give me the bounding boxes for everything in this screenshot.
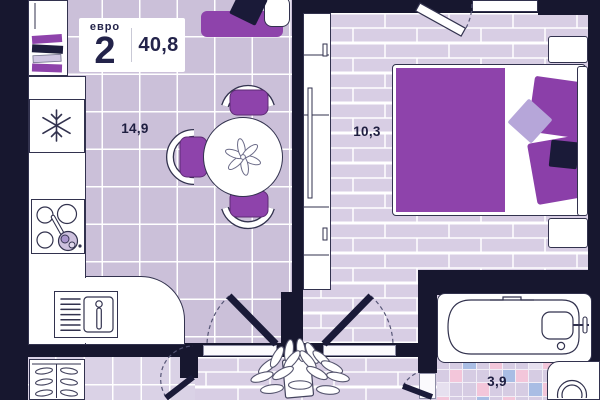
snowflake-icon	[30, 100, 83, 151]
kitchen-living-area-label: 14,9	[108, 121, 162, 136]
bedroom-top-wall	[303, 0, 420, 13]
wardrobe	[303, 13, 331, 290]
bedroom-door-icon	[324, 296, 393, 344]
fridge	[29, 99, 85, 153]
balcony-sill	[472, 0, 538, 12]
washing-machine	[547, 361, 600, 400]
burners-icon	[32, 200, 83, 252]
bathtub	[437, 293, 592, 363]
bottom-wall-center	[278, 343, 322, 357]
bathroom-door-threshold	[419, 373, 436, 399]
shoe-rack	[29, 359, 85, 400]
left-wall	[0, 0, 28, 400]
plan-rooms-count: 2	[79, 34, 131, 69]
plan-header-card: евро 2 40,8	[79, 18, 185, 72]
bed-pillow-dark	[549, 140, 580, 170]
nightstand-bottom	[548, 218, 588, 248]
living-door-threshold	[203, 345, 277, 356]
plan-total-area: 40,8	[132, 34, 185, 57]
kitchen-sink	[54, 291, 118, 338]
bathroom-left-wall	[418, 295, 437, 373]
sofa-cushion	[264, 0, 290, 27]
dining-table	[203, 117, 283, 197]
entry-stub-wall	[180, 355, 198, 378]
floor-plan: евро 2 40,8 14,9 10,3 3,9	[0, 0, 600, 400]
bedroom-area-label: 10,3	[340, 124, 394, 139]
nightstand-top	[548, 36, 588, 63]
bottom-wall-left	[28, 343, 202, 357]
balcony-door-icon	[416, 2, 472, 36]
right-wall	[588, 0, 600, 295]
bedroom-door-threshold	[323, 345, 396, 356]
headboard	[577, 66, 588, 216]
bed-blanket	[396, 68, 505, 212]
bed	[392, 64, 586, 216]
bottom-wall-right	[397, 343, 437, 357]
stove	[31, 199, 85, 254]
bathroom-top-wall	[418, 270, 600, 295]
wall-chase	[281, 292, 303, 345]
bathroom-area-label: 3,9	[470, 374, 524, 389]
bookshelf	[28, 0, 68, 76]
